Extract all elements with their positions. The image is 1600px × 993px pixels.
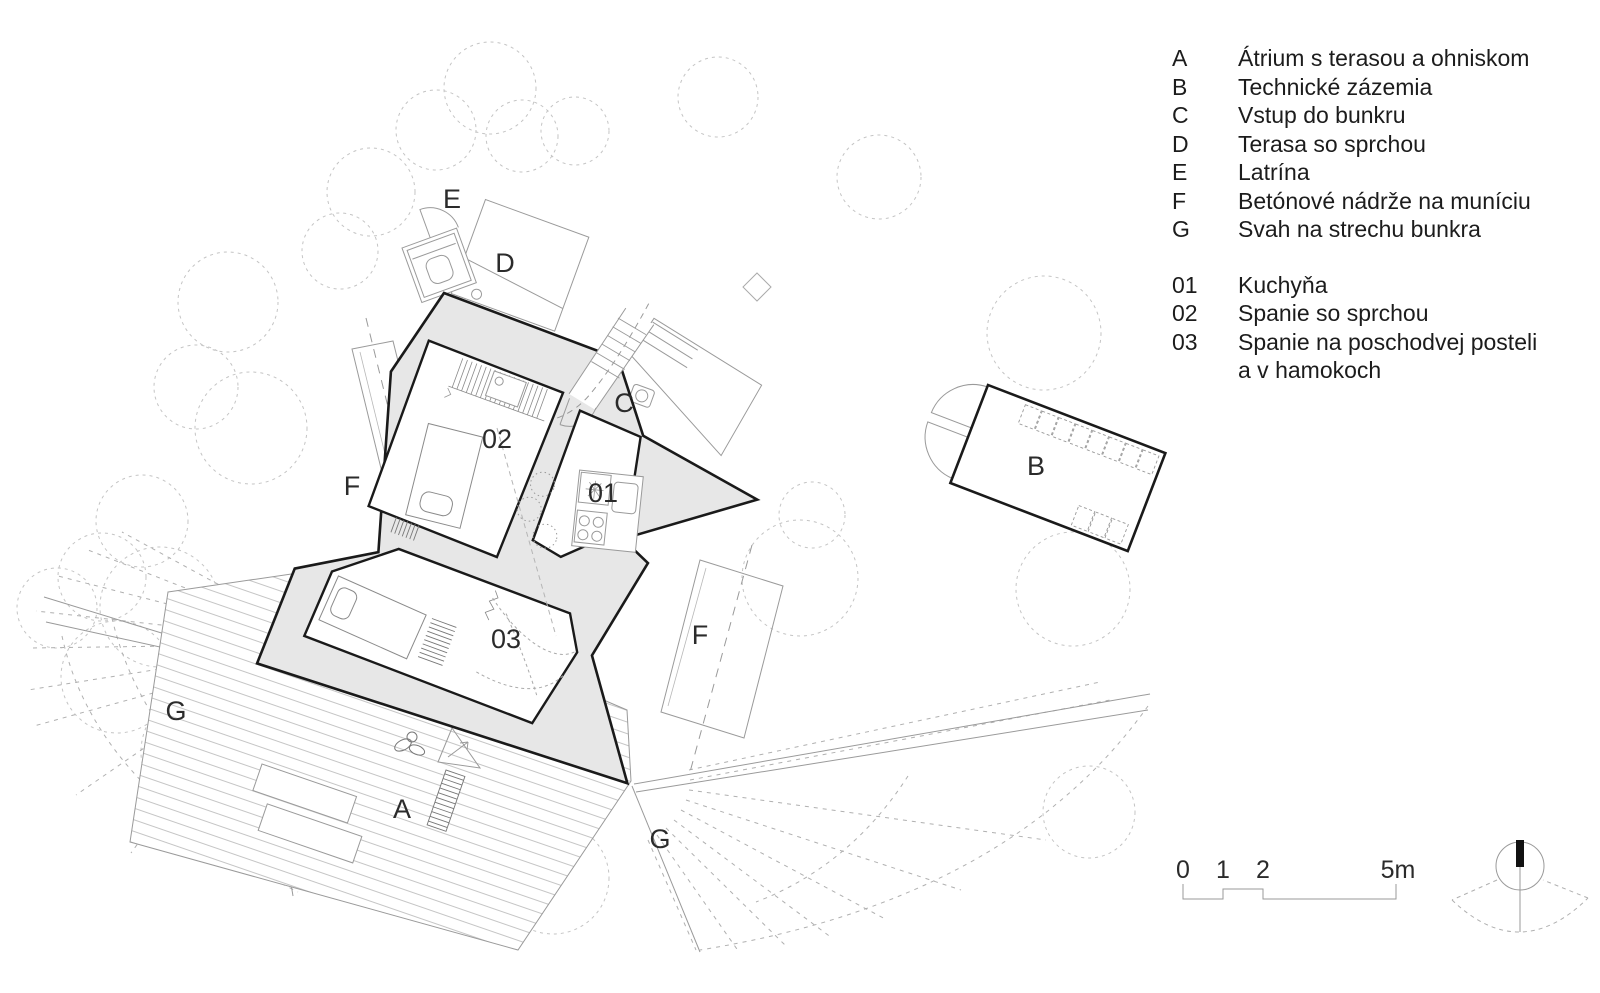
legend-key: A [1172,44,1238,73]
legend-label: Technické zázemia [1238,73,1432,102]
plan-label-b: B [1027,451,1045,481]
plan-label-c: C [614,388,634,418]
legend-label: Betónové nádrže na muníciu [1238,187,1531,216]
legend-row-a: A Átrium s terasou a ohniskom [1172,44,1592,73]
legend-key: D [1172,130,1238,159]
legend: A Átrium s terasou a ohniskom B Technick… [1172,44,1592,385]
legend-row-e: E Latrína [1172,158,1592,187]
small-diamond-marker [743,273,771,301]
legend-key: F [1172,187,1238,216]
plan-label-f-east: F [692,620,709,650]
north-needle [1516,840,1524,867]
legend-key: 01 [1172,271,1238,300]
legend-row-c: C Vstup do bunkru [1172,101,1592,130]
north-indicator [1452,840,1588,932]
legend-row-d: D Terasa so sprchou [1172,130,1592,159]
plan-label-e: E [443,184,461,214]
scale-tick-0: 0 [1176,856,1190,884]
floor-plan-page: E D C 02 01 F B 03 F G A G 0 1 2 5m A [0,0,1600,993]
legend-row-g: G Svah na strechu bunkra [1172,215,1592,244]
legend-label: a v hamokoch [1238,356,1381,385]
plan-label-g-west: G [165,696,186,726]
legend-label: Spanie so sprchou [1238,299,1429,328]
legend-key: E [1172,158,1238,187]
legend-key: C [1172,101,1238,130]
legend-label: Svah na strechu bunkra [1238,215,1481,244]
legend-row-f: F Betónové nádrže na muníciu [1172,187,1592,216]
ammo-tank-east [661,545,783,772]
legend-label: Vstup do bunkru [1238,101,1406,130]
legend-row-02: 02 Spanie so sprchou [1172,299,1592,328]
plan-label-d: D [495,248,515,278]
plan-label-f-west: F [344,471,361,501]
plan-label-03: 03 [491,624,521,654]
legend-row-03: 03 Spanie na poschodvej posteli [1172,328,1592,357]
plan-label-01: 01 [588,478,618,508]
legend-label: Spanie na poschodvej posteli [1238,328,1537,357]
plan-label-02: 02 [482,424,512,454]
legend-key: 03 [1172,328,1238,357]
scale-tick-5m: 5m [1381,856,1416,884]
plan-label-g-south: G [649,824,670,854]
scale-tick-1: 1 [1216,856,1230,884]
legend-label: Terasa so sprchou [1238,130,1426,159]
legend-row-03-cont: a v hamokoch [1172,356,1592,385]
legend-key: G [1172,215,1238,244]
legend-row-b: B Technické zázemia [1172,73,1592,102]
legend-label: Latrína [1238,158,1310,187]
legend-label: Kuchyňa [1238,271,1328,300]
scale-tick-2: 2 [1256,856,1270,884]
latrine [392,199,478,302]
slope-south [632,682,1150,952]
legend-key: 02 [1172,299,1238,328]
legend-key [1172,356,1238,385]
legend-key: B [1172,73,1238,102]
plan-label-a: A [393,794,411,824]
legend-label: Átrium s terasou a ohniskom [1238,44,1529,73]
stove [574,510,607,545]
legend-row-01: 01 Kuchyňa [1172,271,1592,300]
scale-bar: 0 1 2 5m [1176,856,1415,899]
